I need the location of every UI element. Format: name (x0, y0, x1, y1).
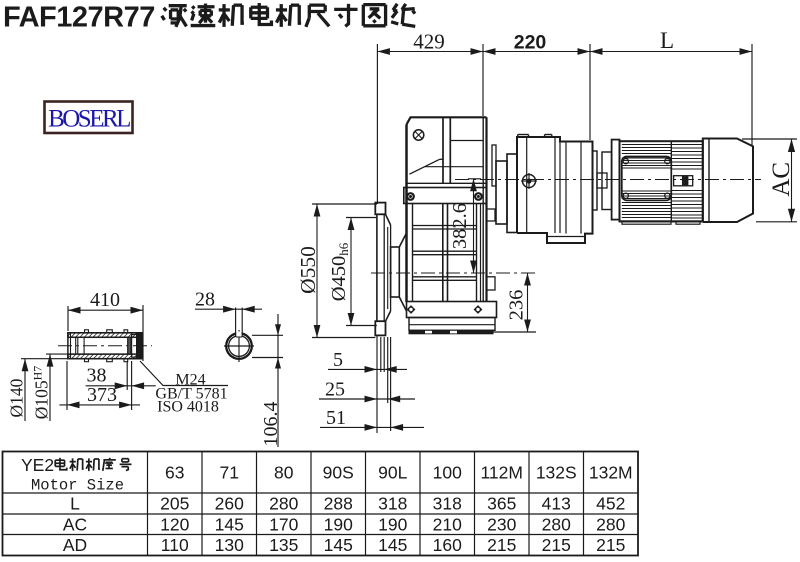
svg-text:280: 280 (542, 515, 571, 535)
svg-text:106.4: 106.4 (260, 402, 282, 447)
svg-text:63: 63 (165, 463, 184, 483)
svg-text:215: 215 (542, 535, 571, 555)
svg-text:FAF127R77: FAF127R77 (3, 2, 155, 34)
svg-text:413: 413 (542, 494, 571, 514)
svg-text:410: 410 (90, 289, 120, 311)
svg-text:230: 230 (487, 515, 516, 535)
svg-text:280: 280 (596, 515, 625, 535)
svg-text:220: 220 (514, 32, 547, 54)
svg-text:145: 145 (215, 515, 244, 535)
svg-text:L: L (660, 28, 674, 53)
svg-text:130: 130 (215, 535, 244, 555)
svg-text:205: 205 (160, 494, 189, 514)
svg-text:382.6: 382.6 (449, 203, 471, 249)
svg-text:Ø550: Ø550 (296, 246, 320, 294)
svg-text:145: 145 (378, 535, 407, 555)
svg-text:215: 215 (596, 535, 625, 555)
svg-text:90L: 90L (378, 463, 407, 483)
svg-text:5: 5 (333, 349, 343, 371)
svg-text:288: 288 (324, 494, 353, 514)
svg-text:100: 100 (433, 463, 462, 483)
svg-text:AC: AC (63, 515, 87, 535)
svg-text:190: 190 (324, 515, 353, 535)
svg-text:51: 51 (326, 407, 346, 429)
svg-text:AD: AD (63, 535, 87, 555)
svg-text:318: 318 (378, 494, 407, 514)
svg-text:215: 215 (487, 535, 516, 555)
svg-text:ISO 4018: ISO 4018 (157, 399, 219, 416)
svg-text:120: 120 (160, 515, 189, 535)
svg-text:25: 25 (325, 379, 345, 401)
svg-text:BOSERL: BOSERL (48, 106, 130, 133)
svg-text:318: 318 (433, 494, 462, 514)
svg-text:Ø140: Ø140 (7, 378, 27, 417)
svg-text:132M: 132M (589, 463, 633, 483)
svg-text:452: 452 (596, 494, 625, 514)
svg-text:236: 236 (506, 290, 528, 321)
svg-text:145: 145 (324, 535, 353, 555)
svg-text:AC: AC (768, 162, 795, 197)
svg-text:71: 71 (220, 463, 239, 483)
svg-text:135: 135 (269, 535, 298, 555)
svg-text:160: 160 (433, 535, 462, 555)
svg-text:260: 260 (215, 494, 244, 514)
svg-text:Motor Size: Motor Size (31, 477, 124, 495)
svg-text:132S: 132S (536, 463, 577, 483)
svg-text:280: 280 (269, 494, 298, 514)
svg-text:80: 80 (274, 463, 294, 483)
svg-text:90S: 90S (323, 463, 354, 483)
svg-text:112M: 112M (481, 463, 523, 483)
svg-text:28: 28 (195, 289, 215, 311)
svg-text:170: 170 (269, 515, 298, 535)
svg-text:110: 110 (161, 535, 189, 555)
svg-text:210: 210 (433, 515, 462, 535)
svg-text:429: 429 (413, 30, 445, 54)
svg-text:YE2: YE2 (21, 455, 54, 475)
svg-text:L: L (70, 494, 80, 514)
svg-text:373: 373 (87, 384, 117, 406)
svg-text:365: 365 (487, 494, 516, 514)
svg-text:190: 190 (378, 515, 407, 535)
